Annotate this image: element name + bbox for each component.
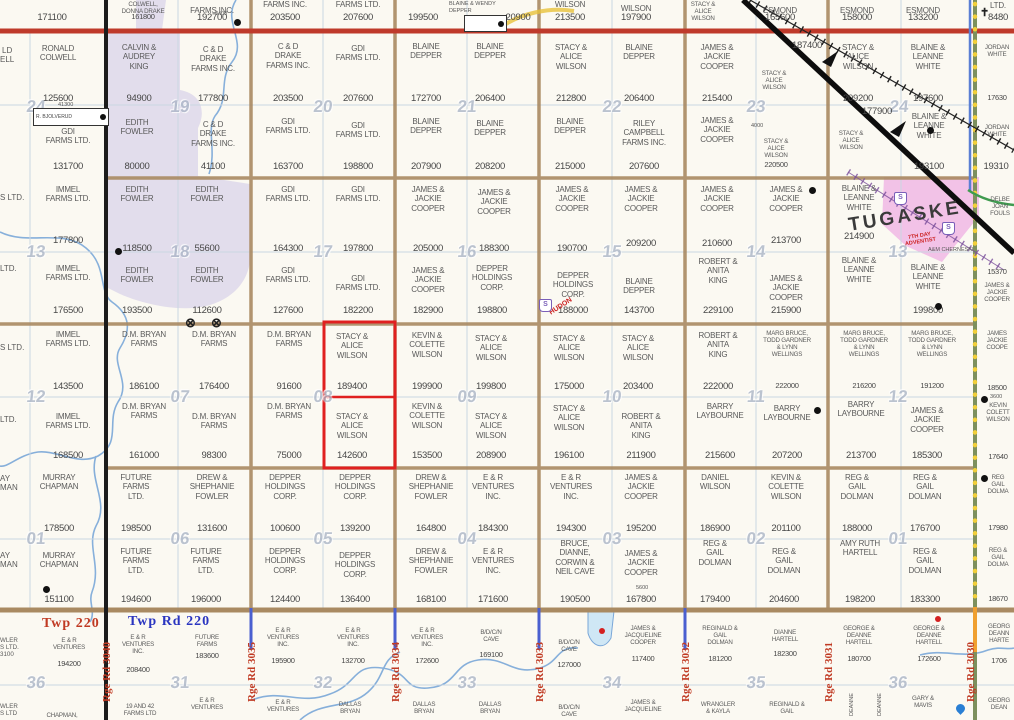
dot-icon bbox=[115, 248, 122, 255]
parcel-owner: JAMES & JACKIE COOPER bbox=[465, 188, 523, 216]
school-icon: S bbox=[539, 299, 552, 312]
parcel-value: 143700 bbox=[612, 306, 666, 316]
parcel-value: 206400 bbox=[612, 94, 666, 104]
parcel-owner: JAMES JACKIE COOPE bbox=[980, 330, 1014, 351]
parcel-value: 222000 bbox=[753, 382, 821, 390]
parcel-owner: EDITH FOWLER bbox=[180, 266, 234, 285]
parcel-owner: BLAINE DEPPER bbox=[543, 117, 597, 136]
parcel-owner-fragment: LTD. bbox=[0, 264, 17, 273]
parcel-owner: E & R VENTURES bbox=[180, 697, 234, 711]
parcel-value: 220500 bbox=[753, 161, 799, 169]
parcel-value: 55600 bbox=[180, 244, 234, 254]
parcel-value: 184300 bbox=[465, 524, 521, 534]
parcel-owner: GDI FARMS LTD. bbox=[255, 117, 321, 136]
parcel-value: 136400 bbox=[325, 595, 385, 605]
parcel-value: 194200 bbox=[40, 660, 98, 668]
parcel-value: 131700 bbox=[30, 162, 106, 172]
parcel-value: 143500 bbox=[30, 382, 106, 392]
parcel-value: 167800 bbox=[612, 595, 670, 605]
parcel-value: 142600 bbox=[327, 451, 377, 461]
parcel-owner: GDI FARMS LTD. bbox=[325, 274, 391, 293]
parcel-owner: STACY & ALICE WILSON bbox=[612, 334, 664, 362]
parcel-value: 188300 bbox=[465, 244, 523, 254]
parcel-value: 215400 bbox=[688, 94, 746, 104]
parcel-value: 205000 bbox=[399, 244, 457, 254]
parcel-value: 189400 bbox=[327, 382, 377, 392]
parcel-value: 164300 bbox=[255, 244, 321, 254]
parcel-owner: DEPPER HOLDINGS CORP. bbox=[543, 271, 603, 299]
parcel-value: 211900 bbox=[612, 451, 670, 461]
parcel-value: 186900 bbox=[688, 524, 742, 534]
parcel-value: 179400 bbox=[688, 595, 742, 605]
reddot-icon bbox=[599, 628, 605, 634]
parcel-value: 158000 bbox=[830, 13, 884, 23]
owner-inset-box: R. BJOLVERUD bbox=[33, 108, 109, 126]
parcel-owner: CHAPMAN, bbox=[30, 712, 94, 719]
parcel-owner: FUTURE FARMS LTD. bbox=[110, 473, 162, 501]
parcel-value: 169100 bbox=[465, 651, 517, 659]
parcel-owner-fragment: ELL bbox=[0, 55, 14, 64]
parcel-owner: JAMES & JACKIE COOPER bbox=[543, 185, 601, 213]
parcel-owner: WILSON bbox=[544, 0, 596, 9]
parcel-owner: D.M. BRYAN FARMS bbox=[110, 402, 178, 421]
parcel-owner: GDI FARMS LTD. bbox=[325, 44, 391, 63]
reddot-icon bbox=[935, 616, 941, 622]
parcel-owner: EDITH FOWLER bbox=[110, 118, 164, 137]
parcel-owner: REGINALD & GAIL bbox=[757, 701, 817, 715]
parcel-owner: FARMS INC. bbox=[254, 0, 316, 9]
parcel-value: 178500 bbox=[28, 524, 90, 534]
parcel-owner: STACY & ALICE WILSON bbox=[543, 404, 595, 432]
parcel-value: 180700 bbox=[828, 655, 890, 663]
parcel-value: 206400 bbox=[463, 94, 517, 104]
parcel-value: 161000 bbox=[110, 451, 178, 461]
parcel-value: 75000 bbox=[255, 451, 323, 461]
parcel-owner: DIANNE HARTELL bbox=[757, 629, 813, 643]
parcel-value: 195200 bbox=[612, 524, 670, 534]
parcel-value: 215600 bbox=[686, 451, 754, 461]
parcel-owner: GDI FARMS LTD. bbox=[325, 185, 391, 204]
parcel-owner: STACY & ALICE WILSON bbox=[465, 334, 517, 362]
parcel-owner: STACY & ALICE WILSON bbox=[465, 412, 517, 440]
parcel-value: 153500 bbox=[399, 451, 455, 461]
parcel-owner: B/D/C/N CAVE bbox=[465, 629, 517, 643]
parcel-owner: BLAINE DEPPER bbox=[463, 119, 517, 138]
parcel-value: 183300 bbox=[898, 595, 952, 605]
section-number: 31 bbox=[163, 673, 197, 693]
parcel-owner: IMMEL FARMS LTD. bbox=[30, 412, 106, 431]
parcel-owner: DREW & SHEPHANIE FOWLER bbox=[399, 547, 463, 575]
range-road-label: Rge Rd 3033 bbox=[534, 642, 546, 702]
parcel-value: 127000 bbox=[543, 661, 595, 669]
parcel-value: 80000 bbox=[110, 162, 164, 172]
parcel-owner: REG & GAIL DOLMAN bbox=[688, 539, 742, 567]
parcel-value: 215000 bbox=[543, 162, 597, 172]
parcel-owner: REG & GAIL DOLMAN bbox=[830, 473, 884, 501]
parcel-value: 176700 bbox=[898, 524, 952, 534]
parcel-owner: E & R VENTURES INC. bbox=[255, 627, 311, 648]
parcel-value: 171100 bbox=[26, 13, 78, 23]
parcel-owner: RONALD COLWELL bbox=[28, 44, 88, 63]
parcel-owner: IMMEL FARMS LTD. bbox=[30, 185, 106, 204]
parcel-owner: BLAINE & LEANNE WHITE bbox=[830, 184, 888, 212]
parcel-value: 208400 bbox=[110, 666, 166, 674]
parcel-value: 204600 bbox=[757, 595, 811, 605]
section-number: 32 bbox=[306, 673, 340, 693]
parcel-owner: JORDAN WHITE bbox=[980, 44, 1014, 58]
dot-icon bbox=[809, 187, 816, 194]
dot-icon bbox=[814, 407, 821, 414]
section-number: 36 bbox=[881, 673, 915, 693]
parcel-owner: DEPPER HOLDINGS CORP. bbox=[463, 264, 521, 292]
parcel-value: 193100 bbox=[900, 162, 958, 172]
parcel-owner-fragment: AY MAN bbox=[0, 551, 18, 569]
parcel-owner: DREW & SHEPHANIE FOWLER bbox=[399, 473, 463, 501]
parcel-owner: JAMES & JACQUELINE COOPER bbox=[610, 625, 676, 646]
parcel-value: 168100 bbox=[399, 595, 463, 605]
parcel-value: 216200 bbox=[830, 382, 898, 390]
parcel-value: 212800 bbox=[543, 94, 599, 104]
parcel-value: 182900 bbox=[399, 306, 457, 316]
parcel-value: 209200 bbox=[830, 94, 886, 104]
parcel-owner: JAMES & JACKIE COOPER bbox=[399, 266, 457, 294]
parcel-value: 203500 bbox=[254, 13, 316, 23]
parcel-owner: IMMEL FARMS LTD. bbox=[30, 330, 106, 349]
parcel-owner: STACY & ALICE WILSON bbox=[753, 70, 795, 91]
parcel-value: 210600 bbox=[688, 239, 746, 249]
parcel-owner: BLAINE & LEANNE WHITE bbox=[830, 256, 888, 284]
parcel-value: 203400 bbox=[612, 382, 664, 392]
parcel-owner: STACY & ALICE WILSON bbox=[543, 43, 599, 71]
parcel-owner: ROBERT & ANITA KING bbox=[688, 331, 748, 359]
parcel-value: 229100 bbox=[688, 306, 748, 316]
parcel-value: 207600 bbox=[325, 94, 391, 104]
parcel-owner: D.M. BRYAN FARMS bbox=[255, 330, 323, 349]
parcel-owner: JORDAN WHITE bbox=[980, 124, 1014, 138]
parcel-value: 172600 bbox=[898, 655, 960, 663]
parcel-value: 133200 bbox=[896, 13, 950, 23]
parcel-value: 182200 bbox=[325, 306, 391, 316]
parcel-owner: MARG BRUCE, TODD GARDNER & LYNN WELLINGS bbox=[898, 330, 966, 359]
parcel-owner: GDI FARMS LTD. bbox=[325, 121, 391, 140]
parcel-value: 208200 bbox=[463, 162, 517, 172]
parcel-owner: REG & GAIL DOLMA bbox=[982, 547, 1014, 568]
parcel-value: 199500 bbox=[398, 13, 448, 23]
parcel-owner: STACY & ALICE WILSON bbox=[830, 43, 886, 71]
parcel-owner: BARRY LAYBOURNE bbox=[755, 404, 819, 423]
parcel-owner: GARY & MAVIS bbox=[898, 695, 948, 709]
parcel-owner: D.M. BRYAN FARMS bbox=[180, 412, 248, 431]
parcel-owner: FUTURE FARMS LTD. bbox=[180, 547, 232, 575]
parcel-value: 18670 bbox=[982, 595, 1014, 603]
parcel-owner: GEORG DEANN HARTE bbox=[984, 623, 1014, 644]
parcel-owner: REG & GAIL DOLMAN bbox=[898, 473, 952, 501]
parcel-value: 168500 bbox=[30, 451, 106, 461]
school-icon: S bbox=[894, 192, 907, 205]
parcel-owner: JAMES & JACKIE COOPER bbox=[688, 185, 746, 213]
section-number: 34 bbox=[595, 673, 629, 693]
parcel-value: 19310 bbox=[978, 162, 1014, 172]
parcel-owner: BLAINE & LEANNE WHITE bbox=[898, 263, 958, 291]
range-road-label: Rge Rd 3034 bbox=[390, 642, 402, 702]
parcel-owner: DEPPER HOLDINGS CORP. bbox=[325, 473, 385, 501]
parcel-owner: RILEY CAMPBELL FARMS INC. bbox=[610, 119, 678, 147]
parcel-owner: EDITH FOWLER bbox=[180, 185, 234, 204]
parcel-value: 198500 bbox=[110, 524, 162, 534]
parcel-value: 213700 bbox=[757, 236, 815, 246]
parcel-value: 124400 bbox=[255, 595, 315, 605]
parcel-owner: DEPPER HOLDINGS CORP. bbox=[255, 547, 315, 575]
parcel-value: 15370 bbox=[978, 268, 1014, 276]
parcel-owner: JAMES & JACKIE COOPER bbox=[688, 116, 746, 144]
parcel-value: 98300 bbox=[180, 451, 248, 461]
parcel-value: 17640 bbox=[980, 453, 1014, 461]
parcel-value: 177800 bbox=[30, 236, 106, 246]
range-road-label: Rge Rd 3040 bbox=[101, 642, 113, 702]
parcel-value: 213700 bbox=[828, 451, 894, 461]
parcel-owner: BLAINE DEPPER bbox=[399, 42, 453, 61]
parcel-owner: GDI FARMS LTD. bbox=[30, 127, 106, 146]
parcel-owner: BLAINE DEPPER bbox=[612, 43, 666, 62]
parcel-owner: STACY & ALICE WILSON bbox=[830, 130, 872, 151]
parcel-owner: KEVIN & COLETTE WILSON bbox=[399, 331, 455, 359]
parcel-owner: E & R VENTURES bbox=[40, 637, 98, 651]
map-annotation: BLAINE & WENDY DEPPER bbox=[449, 1, 496, 14]
parcel-owner: D.M. BRYAN FARMS bbox=[180, 330, 248, 349]
parcel-value: 176400 bbox=[180, 382, 248, 392]
parcel-value: 176500 bbox=[30, 306, 106, 316]
parcel-owner: DALLAS BRYAN bbox=[465, 701, 515, 715]
parcel-owner: IMMEL FARMS LTD. bbox=[30, 264, 106, 283]
parcel-owner-fragment: WLER S LTD bbox=[0, 703, 18, 717]
parcel-value: 194600 bbox=[110, 595, 162, 605]
parcel-owner: JAMES & JACKIE COOPER bbox=[978, 282, 1014, 303]
parcel-owner: FARMS LTD. bbox=[326, 0, 390, 9]
parcel-value: 172700 bbox=[399, 94, 453, 104]
parcel-value: 127600 bbox=[255, 306, 321, 316]
parcel-owner-fragment: S LTD. bbox=[0, 343, 24, 352]
parcel-owner: MURRAY CHAPMAN bbox=[28, 473, 90, 492]
parcel-owner: JAMES & JACKIE COOPER bbox=[612, 473, 670, 501]
parcel-owner: FUTURE FARMS LTD. bbox=[110, 547, 162, 575]
parcel-owner: E & R VENTURES INC. bbox=[543, 473, 599, 501]
cadastral-map-canvas[interactable]: 171100COLWELL, DONNA DRAKE161800FARMS IN… bbox=[0, 0, 1014, 720]
parcel-owner: BLAINE DEPPER bbox=[463, 42, 517, 61]
parcel-owner: BARRY LAYBOURNE bbox=[828, 400, 894, 419]
parcel-value: 207200 bbox=[755, 451, 819, 461]
inset-box-label: R. BJOLVERUD bbox=[36, 115, 72, 120]
section-number: 36 bbox=[19, 673, 53, 693]
parcel-value: 198200 bbox=[828, 595, 892, 605]
parcel-owner: WRANGLER & KAYLA bbox=[688, 701, 748, 715]
well-icon: ⊗ bbox=[184, 316, 197, 329]
parcel-owner-fragment: LTD. bbox=[0, 415, 17, 424]
map-annotation: 3600 bbox=[990, 394, 1002, 401]
parcel-owner: E & R VENTURES INC. bbox=[110, 634, 166, 655]
township-road-label-blue: Twp Rd 220 bbox=[128, 614, 210, 630]
parcel-owner: JAMES & JACQUELINE bbox=[610, 699, 676, 713]
parcel-value: 193500 bbox=[110, 306, 164, 316]
parcel-value: 17630 bbox=[980, 94, 1014, 102]
section-number: 35 bbox=[739, 673, 773, 693]
parcel-owner: GDI FARMS LTD. bbox=[255, 266, 321, 285]
parcel-value: 183600 bbox=[180, 652, 234, 660]
parcel-owner: REG & GAIL DOLMAN bbox=[898, 547, 952, 575]
parcel-value: 203500 bbox=[255, 94, 321, 104]
well-icon: ⊗ bbox=[210, 316, 223, 329]
parcel-owner: BRUCE, DIANNE, CORWIN & NEIL CAVE bbox=[543, 539, 607, 577]
parcel-value: 18500 bbox=[980, 384, 1014, 392]
parcel-value: 199900 bbox=[399, 382, 455, 392]
parcel-value: 163700 bbox=[255, 162, 321, 172]
parcel-owner: CALVIN & AUDREY KING bbox=[110, 43, 168, 71]
parcel-owner: REGINALD & GAIL DOLMAN bbox=[688, 625, 752, 646]
parcel-owner: STACY & ALICE WILSON bbox=[327, 332, 377, 360]
parcel-owner: DALLAS BRYAN bbox=[325, 701, 375, 715]
parcel-owner: E & R VENTURES INC. bbox=[325, 627, 381, 648]
parcel-owner: JAMES & JACKIE COOPER bbox=[612, 549, 670, 577]
parcel-value: 139200 bbox=[325, 524, 385, 534]
parcel-value: 197800 bbox=[325, 244, 391, 254]
parcel-value: 17980 bbox=[982, 524, 1014, 532]
parcel-owner-fragment: AY MAN bbox=[0, 474, 18, 492]
parcel-value: 41100 bbox=[180, 162, 246, 172]
parcel-value: 198800 bbox=[325, 162, 391, 172]
parcel-owner: E & R VENTURES INC. bbox=[399, 627, 455, 648]
parcel-owner: C & D DRAKE FARMS INC. bbox=[255, 42, 321, 70]
parcel-owner: KEVIN COLETT WILSON bbox=[980, 402, 1014, 423]
parcel-value: 186100 bbox=[110, 382, 178, 392]
parcel-value: 197900 bbox=[610, 13, 662, 23]
range-road-label: Rge Rd 3032 bbox=[680, 642, 692, 702]
parcel-value: 100600 bbox=[255, 524, 315, 534]
parcel-owner: EDITH FOWLER bbox=[110, 185, 164, 204]
parcel-value: 190500 bbox=[543, 595, 607, 605]
parcel-value: 198800 bbox=[463, 306, 521, 316]
parcel-value: 213500 bbox=[544, 13, 596, 23]
parcel-value: 208900 bbox=[465, 451, 517, 461]
map-annotation: DEANNE bbox=[877, 693, 884, 716]
parcel-value: 222000 bbox=[688, 382, 748, 392]
parcel-owner: STACY & ALICE WILSON bbox=[683, 1, 723, 22]
dot-icon bbox=[935, 303, 942, 310]
parcel-owner: C & D DRAKE FARMS INC. bbox=[180, 120, 246, 148]
parcel-value: 207900 bbox=[399, 162, 453, 172]
parcel-value: 181200 bbox=[688, 655, 752, 663]
parcel-value: 195900 bbox=[255, 657, 311, 665]
inset-box-dot bbox=[100, 114, 106, 120]
parcel-value: 196100 bbox=[543, 451, 595, 461]
parcel-value: 190700 bbox=[543, 244, 601, 254]
parcel-value: 199800 bbox=[898, 306, 958, 316]
parcel-value: 177800 bbox=[180, 94, 246, 104]
parcel-owner: BARRY LAYBOURNE bbox=[686, 402, 754, 421]
parcel-value: 182300 bbox=[757, 650, 813, 658]
dot-icon bbox=[927, 127, 934, 134]
parcel-value: 196000 bbox=[180, 595, 232, 605]
parcel-owner: C & D DRAKE FARMS INC. bbox=[180, 45, 246, 73]
parcel-value: 117400 bbox=[610, 655, 676, 663]
parcel-owner: BLAINE & LEANNE WHITE bbox=[898, 43, 958, 71]
parcel-owner: DALLAS BRYAN bbox=[399, 701, 449, 715]
parcel-owner: DREW & SHEPHANIE FOWLER bbox=[178, 473, 246, 501]
owner-inset-box bbox=[464, 15, 507, 32]
parcel-owner: GDI FARMS LTD. bbox=[255, 185, 321, 204]
parcel-value: 151100 bbox=[28, 595, 90, 605]
dot-icon bbox=[234, 19, 241, 26]
parcel-owner: BLAINE DEPPER bbox=[612, 277, 666, 296]
parcel-owner: E & R VENTURES bbox=[255, 699, 311, 713]
parcel-value: 172600 bbox=[399, 657, 455, 665]
parcel-owner: GEORGE & DEANNE HARTELL bbox=[828, 625, 890, 646]
parcel-owner: B/D/C/N CAVE bbox=[543, 639, 595, 653]
parcel-owner: DANIEL WILSON bbox=[688, 473, 742, 492]
parcel-owner-fragment: S LTD. bbox=[0, 193, 24, 202]
parcel-owner: JAMES & JACKIE COOPER bbox=[612, 185, 670, 213]
map-annotation: A&M CHERNESKI bbox=[928, 247, 974, 254]
map-annotation: 4000 bbox=[751, 123, 763, 130]
parcel-value: 94900 bbox=[110, 94, 168, 104]
parcel-value: 91600 bbox=[255, 382, 323, 392]
parcel-owner: DELBE JOAN FOULS bbox=[986, 196, 1014, 217]
parcel-value: 194300 bbox=[543, 524, 599, 534]
parcel-owner: GEORGE & DEANNE HARTELL bbox=[898, 625, 960, 646]
parcel-value: 132700 bbox=[325, 657, 381, 665]
parcel-owner: REG & GAIL DOLMAN bbox=[757, 547, 811, 575]
township-road-label-red: Twp 220 bbox=[42, 616, 100, 632]
parcel-owner: B/D/C/N CAVE bbox=[543, 704, 595, 718]
parcel-owner: MARG BRUCE, TODD GARDNER & LYNN WELLINGS bbox=[830, 330, 898, 359]
range-road-label: Rge Rd 3031 bbox=[823, 642, 835, 702]
parcel-owner: GEORG DEAN bbox=[984, 697, 1014, 711]
parcel-owner: JAMES & JACKIE COOPER bbox=[757, 274, 815, 302]
parcel-owner: KEVIN & COLETTE WILSON bbox=[399, 402, 455, 430]
dot-icon bbox=[981, 475, 988, 482]
parcel-owner: BLAINE DEPPER bbox=[399, 117, 453, 136]
parcel-owner: MARG BRUCE, TODD GARDNER & LYNN WELLINGS bbox=[753, 330, 821, 359]
parcel-owner: JAMES & JACKIE COOPER bbox=[688, 43, 746, 71]
parcel-value: 165600 bbox=[752, 13, 808, 23]
parcel-owner: EDITH FOWLER bbox=[110, 266, 164, 285]
parcel-value: 175000 bbox=[543, 382, 595, 392]
parcel-value: 171600 bbox=[465, 595, 521, 605]
parcel-owner: STACY & ALICE WILSON bbox=[543, 334, 595, 362]
parcel-owner: JAMES & JACKIE COOPER bbox=[399, 185, 457, 213]
parcel-value: 209200 bbox=[612, 239, 670, 249]
parcel-owner: DEPPER HOLDINGS CORP. bbox=[255, 473, 315, 501]
parcel-owner: D.M. BRYAN FARMS bbox=[110, 330, 178, 349]
parcel-owner: AMY RUTH HARTELL bbox=[828, 539, 892, 558]
parcel-value: 197600 bbox=[898, 94, 958, 104]
dot-icon bbox=[981, 396, 988, 403]
section-number: 33 bbox=[450, 673, 484, 693]
parcel-owner: D.M. BRYAN FARMS bbox=[255, 402, 323, 421]
parcel-owner: JAMES & JACKIE COOPER bbox=[898, 406, 956, 434]
parcel-value: 191200 bbox=[898, 382, 966, 390]
parcel-value: 164800 bbox=[399, 524, 463, 534]
parcel-value: 207600 bbox=[610, 162, 678, 172]
parcel-owner: KEVIN & COLETTE WILSON bbox=[757, 473, 815, 501]
parcel-owner: ROBERT & ANITA KING bbox=[612, 412, 670, 440]
dot-icon bbox=[43, 586, 50, 593]
parcel-owner: E & R VENTURES INC. bbox=[465, 547, 521, 575]
cross-icon: ✝ bbox=[980, 6, 989, 19]
parcel-owner: JAMES & JACKIE COOPER bbox=[757, 185, 815, 213]
parcel-owner: STACY & ALICE WILSON bbox=[753, 138, 799, 159]
parcel-value: 187400 bbox=[782, 41, 832, 51]
map-annotation: DEANNE bbox=[849, 693, 856, 716]
parcel-value: 201100 bbox=[757, 524, 815, 534]
